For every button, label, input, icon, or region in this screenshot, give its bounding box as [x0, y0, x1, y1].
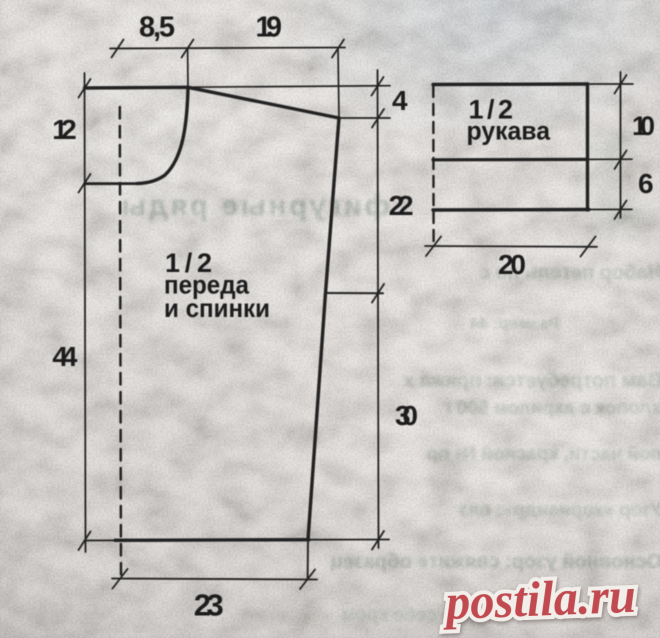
- svg-text:postila.ru: postila.ru: [441, 567, 637, 630]
